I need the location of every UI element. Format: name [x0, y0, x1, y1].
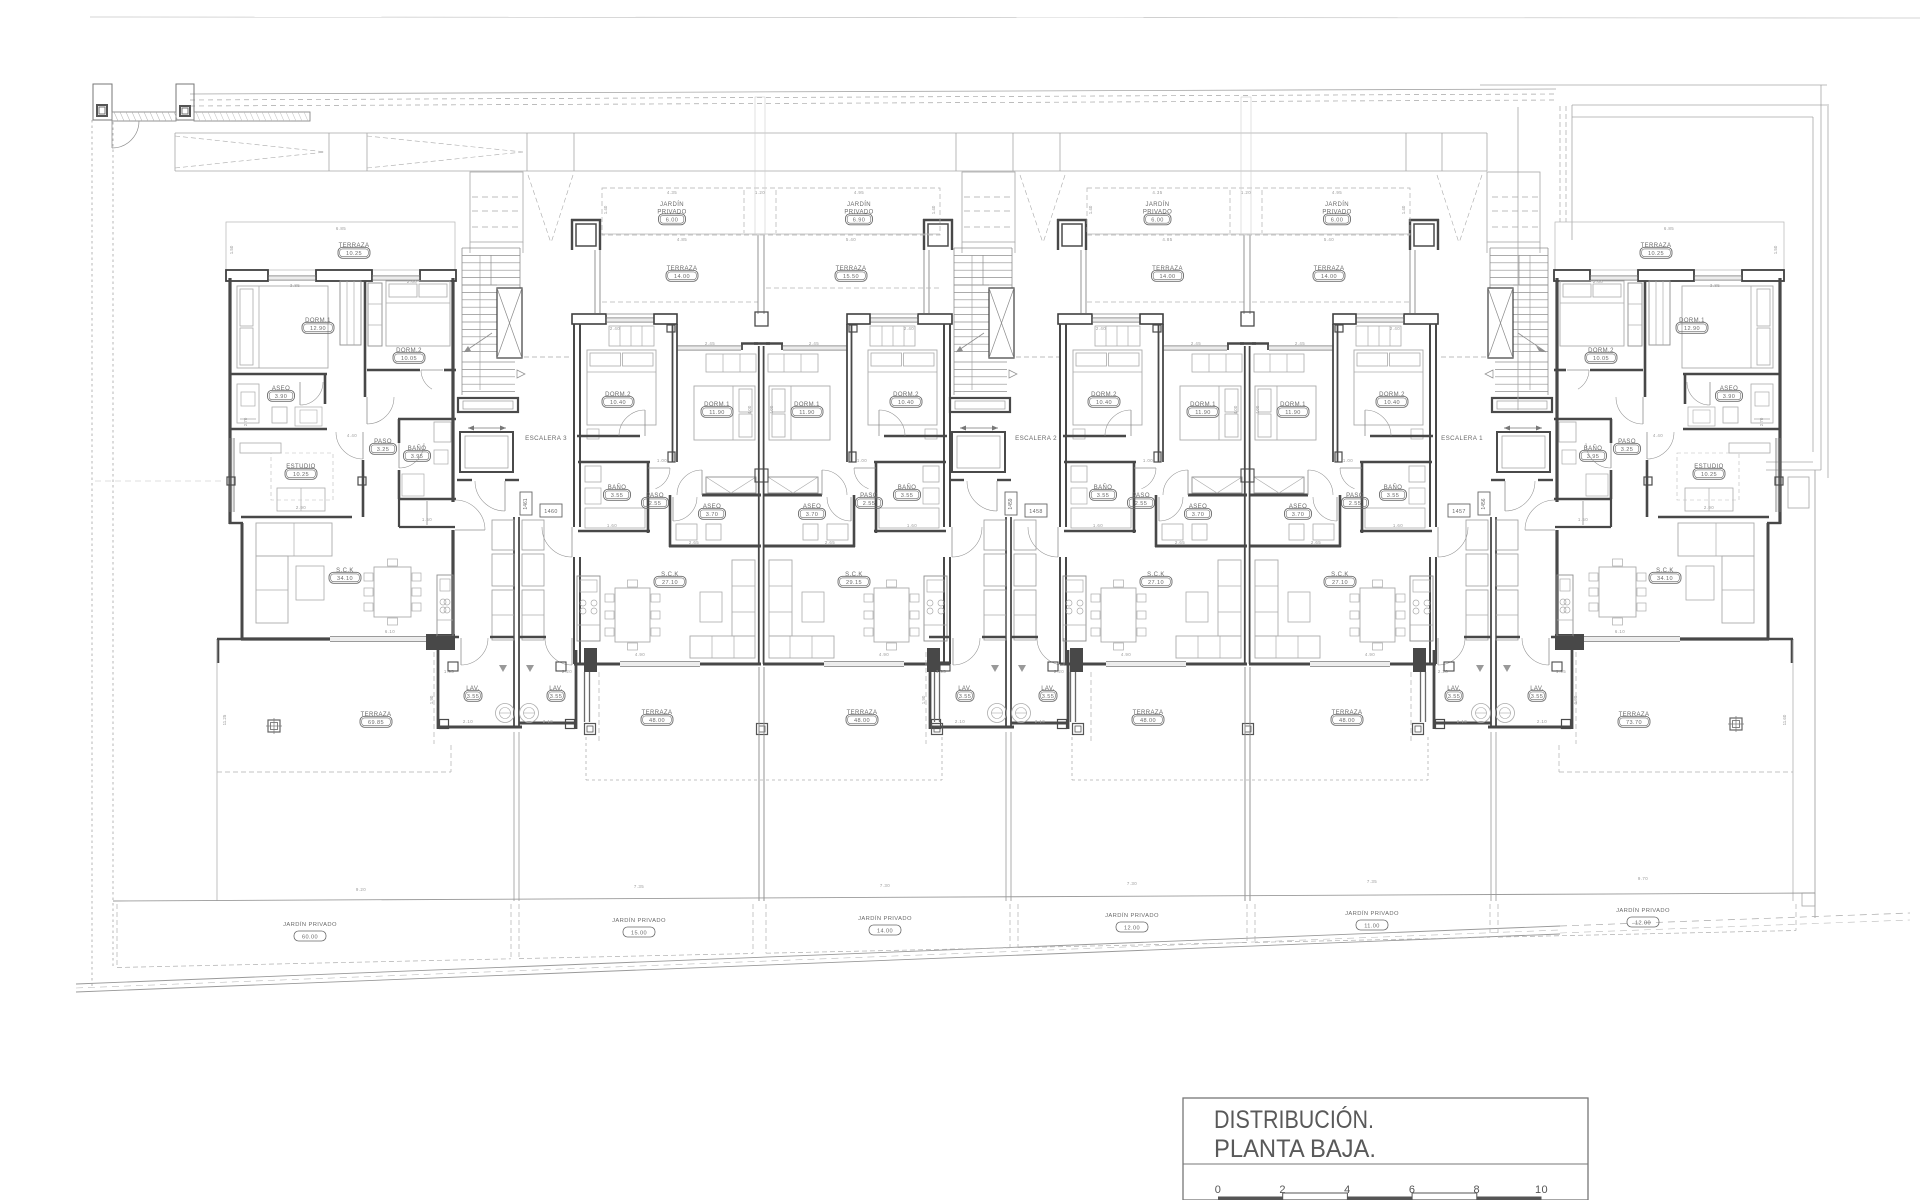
svg-text:JARDÍN: JARDÍN	[660, 201, 684, 208]
svg-text:ASEO: ASEO	[1189, 504, 1207, 510]
svg-text:10.05: 10.05	[1593, 356, 1609, 362]
svg-text:2.65: 2.65	[825, 540, 835, 545]
svg-text:10.40: 10.40	[610, 400, 626, 406]
svg-text:TERRAZA: TERRAZA	[1619, 712, 1650, 718]
svg-text:DORM.1: DORM.1	[305, 318, 331, 324]
svg-text:1457: 1457	[1452, 509, 1466, 515]
svg-text:48.00: 48.00	[649, 718, 665, 724]
svg-text:48.00: 48.00	[1140, 718, 1156, 724]
svg-text:27.10: 27.10	[1148, 580, 1164, 586]
svg-text:DORM.1: DORM.1	[1280, 402, 1306, 408]
svg-text:1458: 1458	[1029, 509, 1043, 515]
svg-text:ASEO: ASEO	[272, 386, 290, 392]
svg-text:4.00: 4.00	[769, 405, 774, 414]
svg-text:73.70: 73.70	[1626, 720, 1642, 726]
svg-text:PRIVADO: PRIVADO	[844, 210, 873, 216]
svg-text:1.20: 1.20	[755, 190, 765, 195]
svg-text:9.70: 9.70	[1638, 876, 1648, 881]
svg-text:10.25: 10.25	[1701, 472, 1717, 478]
svg-text:2.65: 2.65	[1175, 540, 1185, 545]
svg-text:3.55: 3.55	[1387, 493, 1400, 499]
svg-text:2.10: 2.10	[1035, 719, 1045, 724]
svg-text:15.50: 15.50	[843, 274, 859, 280]
svg-text:PASO: PASO	[1346, 493, 1364, 499]
svg-text:ESCALERA 2: ESCALERA 2	[1015, 435, 1057, 442]
svg-text:10.40: 10.40	[1384, 400, 1400, 406]
svg-text:7.35: 7.35	[1367, 879, 1377, 884]
svg-text:DORM.1: DORM.1	[794, 402, 820, 408]
svg-text:3.70: 3.70	[1192, 512, 1205, 518]
svg-text:1.40: 1.40	[603, 205, 608, 214]
svg-text:5.40: 5.40	[1324, 237, 1334, 242]
svg-text:ASEO: ASEO	[803, 504, 821, 510]
svg-text:1.60: 1.60	[907, 523, 917, 528]
svg-text:2.55: 2.55	[649, 501, 662, 507]
svg-text:4.90: 4.90	[1121, 652, 1131, 657]
svg-text:1.00: 1.00	[1343, 458, 1353, 463]
svg-text:ASEO: ASEO	[1289, 504, 1307, 510]
svg-text:69.85: 69.85	[368, 720, 384, 726]
svg-text:TERRAZA: TERRAZA	[1332, 710, 1363, 716]
svg-text:2.90: 2.90	[296, 505, 306, 510]
svg-text:DORM.2: DORM.2	[893, 392, 919, 398]
svg-text:14.00: 14.00	[674, 274, 690, 280]
svg-text:DORM.2: DORM.2	[1588, 348, 1614, 354]
svg-text:3.90: 3.90	[1723, 394, 1736, 400]
svg-text:TERRAZA: TERRAZA	[836, 266, 867, 272]
svg-text:JARDÍN: JARDÍN	[1145, 201, 1169, 208]
svg-text:4.40: 4.40	[1653, 433, 1663, 438]
svg-text:2.10: 2.10	[955, 719, 965, 724]
svg-text:DORM.2: DORM.2	[1091, 392, 1117, 398]
svg-text:4.00: 4.00	[747, 405, 752, 414]
svg-text:BAÑO: BAÑO	[608, 484, 627, 491]
svg-text:14.00: 14.00	[1160, 274, 1176, 280]
svg-text:TERRAZA: TERRAZA	[1133, 710, 1164, 716]
svg-text:10.25: 10.25	[1648, 251, 1664, 257]
svg-text:3.55: 3.55	[1531, 694, 1544, 700]
svg-text:1.00: 1.00	[1143, 458, 1153, 463]
svg-text:1.40: 1.40	[1401, 205, 1406, 214]
svg-text:2.40: 2.40	[610, 326, 620, 331]
svg-text:S.C.K: S.C.K	[1331, 572, 1349, 578]
svg-text:PRIVADO: PRIVADO	[657, 210, 686, 216]
svg-text:3.55: 3.55	[1042, 694, 1055, 700]
svg-text:4.35: 4.35	[1152, 190, 1162, 195]
svg-text:6.85: 6.85	[1664, 226, 1674, 231]
svg-text:ESCALERA 1: ESCALERA 1	[1441, 435, 1483, 442]
svg-text:10.25: 10.25	[346, 251, 362, 257]
svg-text:TERRAZA: TERRAZA	[847, 710, 878, 716]
svg-text:34.10: 34.10	[337, 576, 353, 582]
svg-text:DORM.2: DORM.2	[605, 392, 631, 398]
svg-text:48.00: 48.00	[854, 718, 870, 724]
svg-text:10.40: 10.40	[898, 400, 914, 406]
svg-text:JARDÍN PRIVADO: JARDÍN PRIVADO	[858, 915, 912, 922]
svg-text:4.00: 4.00	[1255, 405, 1260, 414]
svg-text:4.90: 4.90	[879, 652, 889, 657]
svg-text:3.95: 3.95	[411, 454, 424, 460]
svg-text:JARDÍN PRIVADO: JARDÍN PRIVADO	[283, 921, 337, 928]
svg-text:BAÑO: BAÑO	[1384, 484, 1403, 491]
svg-text:1460: 1460	[544, 509, 558, 515]
svg-text:LAV.: LAV.	[549, 686, 563, 692]
svg-text:4.35: 4.35	[667, 190, 677, 195]
svg-text:1.40: 1.40	[1088, 205, 1093, 214]
svg-text:2.10: 2.10	[543, 719, 553, 724]
svg-text:PASO: PASO	[1132, 493, 1150, 499]
svg-text:LAV.: LAV.	[1041, 686, 1055, 692]
svg-text:5.40: 5.40	[846, 237, 856, 242]
svg-text:11.90: 11.90	[799, 410, 815, 416]
svg-text:2.65: 2.65	[689, 540, 699, 545]
svg-text:2.10: 2.10	[1537, 719, 1547, 724]
svg-text:2.45: 2.45	[1295, 341, 1305, 346]
svg-text:S.C.K: S.C.K	[1656, 568, 1674, 574]
svg-text:PASO: PASO	[860, 493, 878, 499]
svg-text:7.30: 7.30	[1127, 881, 1137, 886]
svg-text:3.95: 3.95	[1587, 454, 1600, 460]
svg-text:2.70: 2.70	[243, 417, 248, 426]
svg-text:2.10: 2.10	[1457, 719, 1467, 724]
svg-text:0: 0	[1215, 1184, 1222, 1196]
svg-text:3.55: 3.55	[467, 694, 480, 700]
svg-text:2.55: 2.55	[1135, 501, 1148, 507]
svg-text:TERRAZA: TERRAZA	[667, 266, 698, 272]
svg-text:3.25: 3.25	[377, 447, 390, 453]
svg-text:4.85: 4.85	[677, 237, 687, 242]
svg-text:3.55: 3.55	[901, 493, 914, 499]
svg-text:S.C.K: S.C.K	[661, 572, 679, 578]
svg-text:2.60: 2.60	[407, 279, 417, 284]
svg-text:PASO: PASO	[1618, 439, 1636, 445]
svg-text:JARDÍN PRIVADO: JARDÍN PRIVADO	[1616, 907, 1670, 914]
svg-text:2.40: 2.40	[1390, 326, 1400, 331]
svg-text:1.90: 1.90	[921, 695, 926, 704]
svg-text:3.85: 3.85	[1710, 283, 1720, 288]
svg-text:1.50: 1.50	[1773, 245, 1778, 254]
svg-text:12.00: 12.00	[1124, 925, 1140, 931]
svg-text:1.00: 1.00	[857, 458, 867, 463]
svg-text:DORM.1: DORM.1	[1190, 402, 1216, 408]
svg-text:DORM.1: DORM.1	[704, 402, 730, 408]
svg-text:1456: 1456	[1481, 498, 1487, 509]
svg-text:14.00: 14.00	[877, 928, 893, 934]
svg-text:6.00: 6.00	[1151, 218, 1164, 224]
svg-text:DISTRIBUCIÓN.: DISTRIBUCIÓN.	[1214, 1105, 1374, 1134]
svg-text:7.30: 7.30	[880, 883, 890, 888]
svg-text:4.95: 4.95	[854, 190, 864, 195]
svg-text:ESTUDIO: ESTUDIO	[1694, 464, 1723, 470]
svg-text:1.20: 1.20	[1241, 190, 1251, 195]
svg-text:6.00: 6.00	[1331, 218, 1344, 224]
svg-text:2.10: 2.10	[463, 719, 473, 724]
svg-text:1.90: 1.90	[1573, 695, 1578, 704]
svg-text:60.00: 60.00	[302, 934, 318, 940]
svg-text:PASO: PASO	[646, 493, 664, 499]
svg-text:BAÑO: BAÑO	[898, 484, 917, 491]
svg-text:DORM.2: DORM.2	[396, 348, 422, 354]
svg-text:11.00: 11.00	[1364, 923, 1380, 929]
svg-text:3.85: 3.85	[290, 283, 300, 288]
svg-text:PRIVADO: PRIVADO	[1143, 210, 1172, 216]
svg-text:2.60: 2.60	[1593, 279, 1603, 284]
svg-text:3.55: 3.55	[1097, 493, 1110, 499]
svg-text:LAV.: LAV.	[1447, 686, 1461, 692]
svg-text:TERRAZA: TERRAZA	[1152, 266, 1183, 272]
svg-text:3.70: 3.70	[706, 512, 719, 518]
svg-text:1.60: 1.60	[607, 523, 617, 528]
svg-text:27.10: 27.10	[662, 580, 678, 586]
svg-text:TERRAZA: TERRAZA	[361, 712, 392, 718]
svg-text:ASEO: ASEO	[703, 504, 721, 510]
svg-text:10.25: 10.25	[293, 472, 309, 478]
svg-text:12.00: 12.00	[1635, 920, 1651, 926]
svg-text:3.70: 3.70	[806, 512, 819, 518]
svg-text:4.90: 4.90	[635, 652, 645, 657]
svg-text:TERRAZA: TERRAZA	[1314, 266, 1345, 272]
svg-text:4.00: 4.00	[1233, 405, 1238, 414]
svg-text:JARDÍN: JARDÍN	[1325, 201, 1349, 208]
svg-text:3.55: 3.55	[550, 694, 563, 700]
svg-text:27.10: 27.10	[1332, 580, 1348, 586]
svg-text:1.50: 1.50	[229, 245, 234, 254]
svg-text:ESTUDIO: ESTUDIO	[286, 464, 315, 470]
svg-text:DORM.2: DORM.2	[1379, 392, 1405, 398]
svg-text:15.00: 15.00	[631, 930, 647, 936]
svg-text:S.C.K: S.C.K	[845, 572, 863, 578]
svg-text:14.00: 14.00	[1321, 274, 1337, 280]
svg-text:LAV.: LAV.	[466, 686, 480, 692]
svg-text:2.45: 2.45	[705, 341, 715, 346]
svg-text:TERRAZA: TERRAZA	[1641, 243, 1672, 249]
svg-text:6.85: 6.85	[336, 226, 346, 231]
svg-text:3.55: 3.55	[959, 694, 972, 700]
svg-text:3.70: 3.70	[1292, 512, 1305, 518]
svg-text:1.40: 1.40	[931, 205, 936, 214]
svg-text:2.45: 2.45	[1191, 341, 1201, 346]
svg-text:2.90: 2.90	[1704, 505, 1714, 510]
svg-text:11.90: 11.90	[1285, 410, 1301, 416]
svg-text:TERRAZA: TERRAZA	[339, 243, 370, 249]
svg-text:10: 10	[1535, 1184, 1548, 1196]
svg-text:4.40: 4.40	[347, 433, 357, 438]
svg-text:JARDÍN PRIVADO: JARDÍN PRIVADO	[1105, 912, 1159, 919]
svg-text:7.35: 7.35	[634, 884, 644, 889]
svg-text:48.00: 48.00	[1339, 718, 1355, 724]
svg-text:6.00: 6.00	[666, 218, 679, 224]
svg-text:34.10: 34.10	[1657, 576, 1673, 582]
svg-text:LAV.: LAV.	[958, 686, 972, 692]
svg-text:4.85: 4.85	[1162, 237, 1172, 242]
svg-text:1.50: 1.50	[422, 517, 432, 522]
svg-text:ASEO: ASEO	[1720, 386, 1738, 392]
svg-text:LAV.: LAV.	[1530, 686, 1544, 692]
svg-text:1.50: 1.50	[1578, 517, 1588, 522]
svg-text:3.55: 3.55	[611, 493, 624, 499]
svg-text:6.90: 6.90	[853, 218, 866, 224]
svg-text:2.70: 2.70	[1759, 417, 1764, 426]
svg-text:2.45: 2.45	[809, 341, 819, 346]
svg-text:JARDÍN PRIVADO: JARDÍN PRIVADO	[612, 917, 666, 924]
svg-text:9.20: 9.20	[356, 887, 366, 892]
svg-text:12.90: 12.90	[1684, 326, 1700, 332]
svg-text:10.40: 10.40	[1096, 400, 1112, 406]
svg-text:1461: 1461	[523, 498, 529, 509]
svg-text:3.25: 3.25	[1621, 447, 1634, 453]
svg-text:S.C.K: S.C.K	[1147, 572, 1165, 578]
svg-text:PLANTA BAJA.: PLANTA BAJA.	[1214, 1135, 1376, 1163]
svg-text:11.90: 11.90	[709, 410, 725, 416]
svg-text:2.65: 2.65	[1311, 540, 1321, 545]
svg-text:2.55: 2.55	[863, 501, 876, 507]
svg-text:2.40: 2.40	[904, 326, 914, 331]
svg-text:ESCALERA 3: ESCALERA 3	[525, 435, 567, 442]
svg-text:6.10: 6.10	[385, 629, 395, 634]
svg-text:12.90: 12.90	[310, 326, 326, 332]
svg-text:2.40: 2.40	[1096, 326, 1106, 331]
svg-text:JARDÍN PRIVADO: JARDÍN PRIVADO	[1345, 910, 1399, 917]
svg-text:4.90: 4.90	[1365, 652, 1375, 657]
svg-text:S.C.K: S.C.K	[336, 568, 354, 574]
svg-text:11.60: 11.60	[1782, 714, 1787, 725]
svg-text:TERRAZA: TERRAZA	[642, 710, 673, 716]
svg-text:11.25: 11.25	[222, 714, 227, 725]
svg-text:1459: 1459	[1008, 498, 1014, 509]
svg-text:1.60: 1.60	[1093, 523, 1103, 528]
svg-text:2.55: 2.55	[1349, 501, 1362, 507]
svg-text:DORM.1: DORM.1	[1679, 318, 1705, 324]
svg-text:11.90: 11.90	[1195, 410, 1211, 416]
svg-text:4.95: 4.95	[1332, 190, 1342, 195]
svg-text:10.05: 10.05	[401, 356, 417, 362]
svg-text:3.90: 3.90	[275, 394, 288, 400]
svg-text:3.55: 3.55	[1448, 694, 1461, 700]
svg-text:JARDÍN: JARDÍN	[847, 201, 871, 208]
svg-text:1.00: 1.00	[657, 458, 667, 463]
svg-text:PRIVADO: PRIVADO	[1322, 210, 1351, 216]
svg-text:PASO: PASO	[374, 439, 392, 445]
svg-text:1.90: 1.90	[429, 695, 434, 704]
svg-text:1.60: 1.60	[1393, 523, 1403, 528]
svg-text:6.10: 6.10	[1615, 629, 1625, 634]
svg-text:29.15: 29.15	[846, 580, 862, 586]
svg-text:BAÑO: BAÑO	[1094, 484, 1113, 491]
